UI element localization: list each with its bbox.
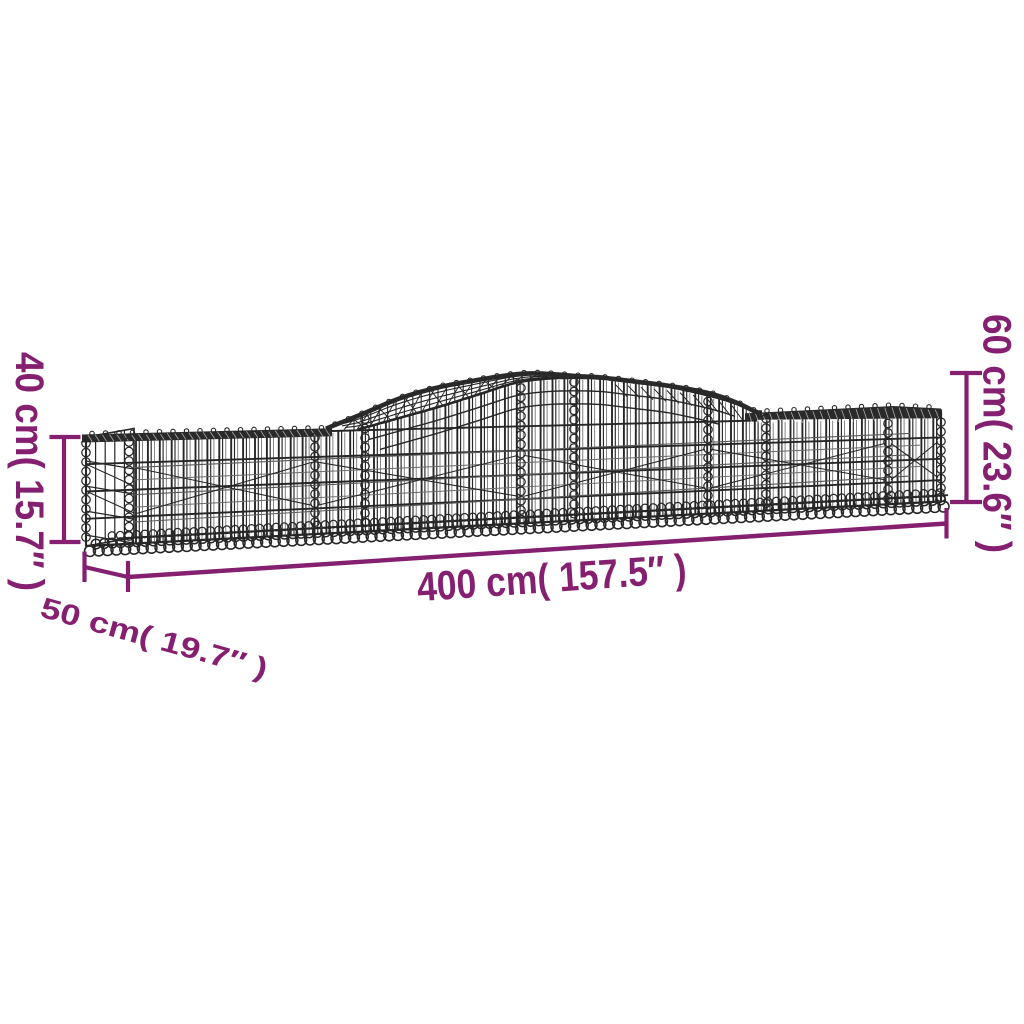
svg-text:60 cm( 23.6″ ): 60 cm( 23.6″ ) xyxy=(974,314,1018,553)
svg-text:40 cm( 15.7″ ): 40 cm( 15.7″ ) xyxy=(7,352,51,591)
